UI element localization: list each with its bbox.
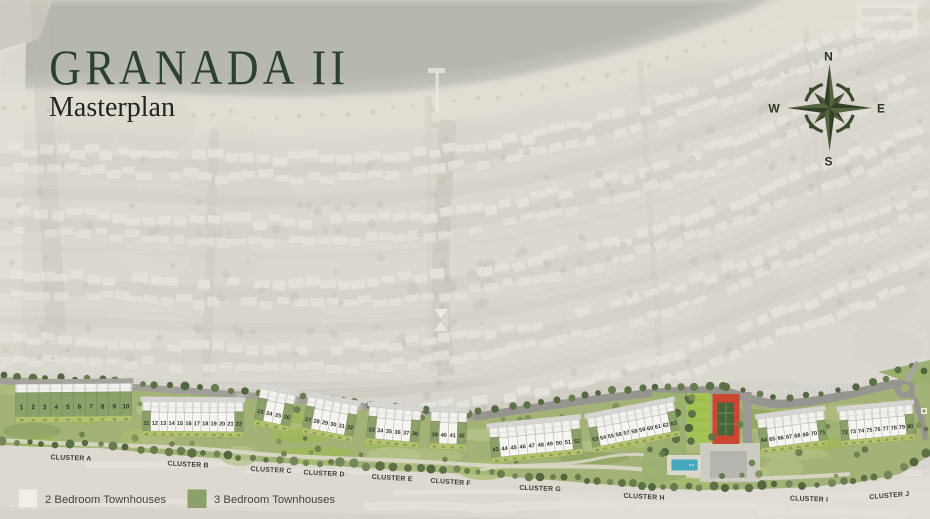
svg-text:58: 58 (631, 428, 638, 435)
svg-text:A0: A0 (20, 418, 24, 422)
svg-text:41: 41 (450, 433, 456, 439)
svg-text:A3: A3 (55, 418, 59, 422)
svg-text:A2: A2 (450, 445, 454, 449)
svg-text:30: 30 (330, 422, 337, 429)
svg-text:3 Bedroom Townhouses: 3 Bedroom Townhouses (214, 494, 335, 506)
svg-text:36: 36 (394, 430, 401, 437)
svg-text:73: 73 (850, 429, 857, 436)
svg-text:48: 48 (537, 442, 544, 449)
svg-text:10: 10 (122, 403, 130, 410)
svg-text:8: 8 (101, 404, 105, 411)
svg-text:23: 23 (257, 409, 264, 416)
svg-text:A4: A4 (403, 443, 407, 447)
svg-text:A2: A2 (513, 457, 517, 461)
svg-text:22: 22 (236, 422, 242, 428)
svg-text:A7: A7 (558, 452, 562, 456)
svg-text:20: 20 (219, 421, 225, 427)
svg-text:9: 9 (112, 403, 116, 410)
svg-text:60: 60 (647, 425, 654, 432)
svg-text:A3: A3 (868, 439, 872, 443)
svg-text:67: 67 (786, 434, 793, 441)
svg-text:A2: A2 (43, 418, 47, 422)
svg-text:A1: A1 (31, 418, 35, 422)
svg-text:2: 2 (31, 404, 35, 411)
svg-text:63: 63 (670, 421, 677, 428)
svg-text:31: 31 (338, 423, 345, 430)
svg-text:A1: A1 (237, 433, 241, 437)
svg-text:A4: A4 (178, 433, 182, 437)
svg-text:A2: A2 (860, 440, 864, 444)
svg-text:78: 78 (891, 425, 898, 432)
svg-text:72: 72 (842, 430, 849, 437)
svg-text:65: 65 (769, 436, 776, 443)
svg-text:69: 69 (802, 432, 809, 439)
svg-text:A0: A0 (145, 432, 149, 436)
svg-text:32: 32 (346, 425, 353, 432)
svg-text:19: 19 (211, 421, 217, 427)
svg-text:52: 52 (574, 439, 581, 446)
svg-text:11: 11 (144, 421, 150, 427)
svg-text:A2: A2 (161, 432, 165, 436)
svg-text:A8: A8 (212, 433, 216, 437)
svg-text:2 Bedroom Townhouses: 2 Bedroom Townhouses (45, 494, 166, 506)
svg-text:68: 68 (794, 433, 801, 440)
svg-text:7: 7 (89, 404, 93, 411)
svg-text:47: 47 (528, 443, 535, 450)
svg-text:A6: A6 (893, 437, 897, 441)
svg-text:A9: A9 (220, 433, 224, 437)
svg-text:A8: A8 (113, 417, 117, 421)
svg-text:A5: A5 (412, 443, 416, 447)
svg-text:53: 53 (592, 436, 599, 443)
svg-text:S: S (824, 155, 832, 169)
svg-text:55: 55 (607, 433, 614, 440)
svg-text:GRANADA II: GRANADA II (49, 40, 349, 95)
svg-text:A0: A0 (844, 441, 848, 445)
svg-text:1: 1 (20, 404, 24, 411)
svg-text:70: 70 (811, 431, 818, 438)
svg-text:38: 38 (411, 431, 418, 438)
svg-text:12: 12 (152, 421, 158, 427)
svg-text:79: 79 (899, 425, 906, 432)
svg-text:42: 42 (459, 433, 465, 439)
svg-text:77: 77 (882, 426, 889, 433)
svg-text:3: 3 (43, 404, 47, 411)
svg-text:A7: A7 (203, 433, 207, 437)
svg-text:CLUSTER A: CLUSTER A (50, 454, 91, 462)
svg-text:15: 15 (177, 421, 183, 427)
svg-text:80: 80 (907, 424, 914, 431)
svg-text:50: 50 (556, 440, 563, 447)
svg-text:29: 29 (321, 420, 328, 427)
svg-text:A1: A1 (441, 445, 445, 449)
svg-text:N: N (824, 50, 833, 64)
svg-text:40: 40 (441, 433, 447, 439)
svg-text:18: 18 (202, 421, 208, 427)
svg-text:A1: A1 (377, 440, 381, 444)
svg-text:A3: A3 (459, 445, 463, 449)
svg-text:51: 51 (565, 440, 572, 447)
svg-text:46: 46 (519, 444, 526, 451)
svg-text:A7: A7 (901, 436, 905, 440)
svg-text:39: 39 (432, 432, 438, 438)
svg-text:43: 43 (492, 447, 499, 454)
svg-text:A5: A5 (885, 438, 889, 442)
svg-text:A4: A4 (531, 455, 535, 459)
svg-text:37: 37 (403, 430, 410, 437)
svg-text:A3: A3 (170, 432, 174, 436)
svg-text:66: 66 (777, 435, 784, 442)
svg-text:61: 61 (654, 424, 661, 431)
svg-text:A2: A2 (386, 441, 390, 445)
svg-text:57: 57 (623, 430, 630, 437)
svg-text:Masterplan: Masterplan (49, 92, 175, 123)
svg-text:A0: A0 (229, 433, 233, 437)
svg-text:25: 25 (274, 413, 281, 420)
svg-text:16: 16 (185, 421, 191, 427)
svg-text:35: 35 (385, 429, 392, 436)
svg-text:75: 75 (866, 428, 873, 435)
svg-text:A4: A4 (66, 418, 70, 422)
svg-text:27: 27 (305, 417, 312, 424)
svg-text:CLUSTER I: CLUSTER I (790, 495, 828, 503)
svg-text:A5: A5 (187, 433, 191, 437)
svg-text:13: 13 (160, 421, 166, 427)
svg-text:A1: A1 (153, 432, 157, 436)
svg-text:A8: A8 (909, 435, 913, 439)
svg-text:4: 4 (54, 404, 58, 411)
svg-text:A5: A5 (78, 418, 82, 422)
svg-text:59: 59 (639, 427, 646, 434)
svg-text:A0: A0 (368, 439, 372, 443)
svg-text:A3: A3 (394, 442, 398, 446)
svg-text:45: 45 (510, 445, 517, 452)
svg-text:W: W (768, 102, 780, 116)
svg-text:56: 56 (615, 432, 622, 439)
svg-text:28: 28 (313, 419, 320, 426)
svg-text:62: 62 (662, 422, 669, 429)
svg-text:6: 6 (78, 404, 82, 411)
svg-text:A9: A9 (124, 417, 128, 421)
svg-text:A0: A0 (432, 444, 436, 448)
svg-text:21: 21 (227, 421, 233, 427)
svg-text:A9: A9 (576, 450, 580, 454)
svg-text:26: 26 (283, 414, 290, 421)
svg-text:A7: A7 (101, 417, 105, 421)
svg-text:A6: A6 (89, 417, 93, 421)
svg-text:14: 14 (169, 421, 176, 427)
svg-text:49: 49 (547, 441, 554, 448)
svg-text:17: 17 (194, 421, 200, 427)
svg-text:5: 5 (66, 404, 70, 411)
svg-text:76: 76 (874, 427, 881, 434)
svg-text:A4: A4 (877, 438, 881, 442)
svg-text:A1: A1 (852, 441, 856, 445)
svg-text:A6: A6 (195, 433, 199, 437)
svg-text:CLUSTER G: CLUSTER G (519, 485, 561, 493)
svg-text:33: 33 (368, 427, 375, 434)
svg-text:E: E (877, 102, 885, 116)
svg-text:71: 71 (819, 430, 826, 437)
